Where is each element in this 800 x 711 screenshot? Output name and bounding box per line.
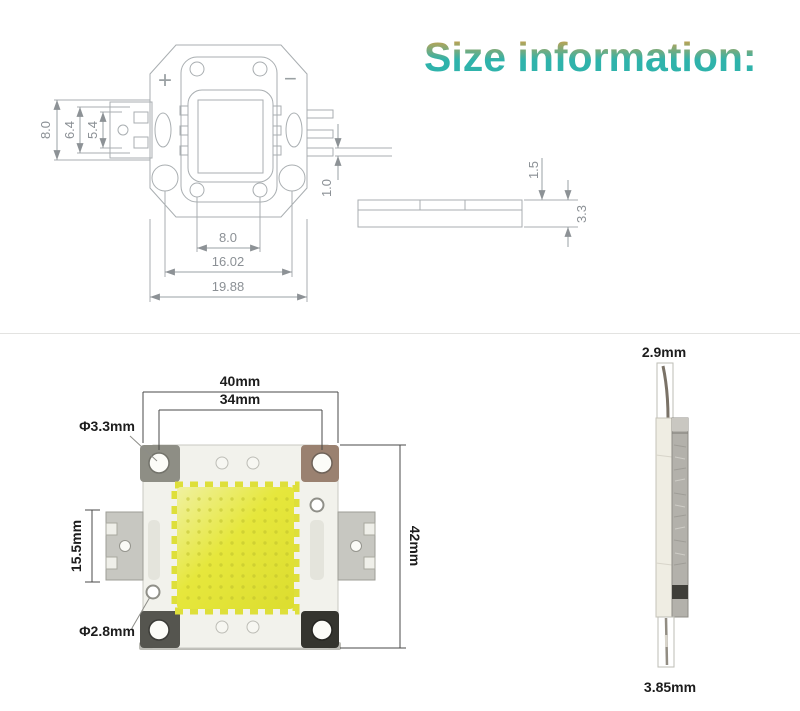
dim-pin: 1.0 — [319, 179, 334, 197]
top-technical-drawing: + − 8.0 6.4 5.4 — [30, 30, 600, 320]
section-divider — [0, 333, 800, 334]
front-view-photo: 40mm 34mm Φ3.3mm 15.5mm Φ2.8mm 42mm — [40, 340, 460, 705]
dim-bottom-outer: 19.88 — [212, 279, 245, 294]
dim-bottom-inner: 8.0 — [219, 230, 237, 245]
dim-pin-bottom: 3.85mm — [644, 679, 696, 695]
polarity-plus-label: + — [158, 67, 172, 94]
dim-height: 42mm — [407, 526, 423, 566]
left-tab-outline — [110, 102, 152, 158]
chip-holes — [152, 62, 305, 197]
dim-side-total: 3.3 — [574, 205, 589, 223]
side-bottom-pin — [658, 617, 674, 667]
dim-corner-hole: Φ3.3mm — [79, 418, 135, 434]
dim-side-top-layer: 1.5 — [526, 161, 541, 179]
dim-tab-height: 15.5mm — [68, 520, 84, 572]
side-view-photo: 2.9mm — [600, 335, 730, 711]
dim-width-outer: 40mm — [220, 373, 260, 389]
dim-bottom-mid: 16.02 — [212, 254, 245, 269]
dim-side-hole: Φ2.8mm — [79, 623, 135, 639]
polarity-minus-label: − — [284, 66, 297, 91]
right-connector-tab — [338, 512, 375, 580]
emitting-area-outline — [180, 90, 281, 182]
size-information-page: Size information: — [0, 0, 800, 711]
dim-left-mid: 6.4 — [62, 121, 77, 139]
dim-pin-group: 1.0 — [319, 124, 392, 197]
dim-left-outer: 8.0 — [38, 121, 53, 139]
left-connector-tab — [106, 512, 143, 580]
dim-pin-top: 2.9mm — [642, 344, 686, 360]
dim-hole-span: 34mm — [220, 391, 260, 407]
side-chip-body — [656, 418, 688, 617]
top-side-view: 1.5 3.3 — [358, 158, 589, 247]
dim-left-inner: 5.4 — [85, 121, 100, 139]
phosphor-area — [175, 485, 296, 611]
pins-outline — [307, 110, 333, 156]
dim-bottom-group: 8.0 16.02 19.88 — [150, 191, 307, 302]
side-top-pin — [657, 363, 673, 418]
dim-left-group: 8.0 6.4 5.4 — [38, 100, 150, 160]
